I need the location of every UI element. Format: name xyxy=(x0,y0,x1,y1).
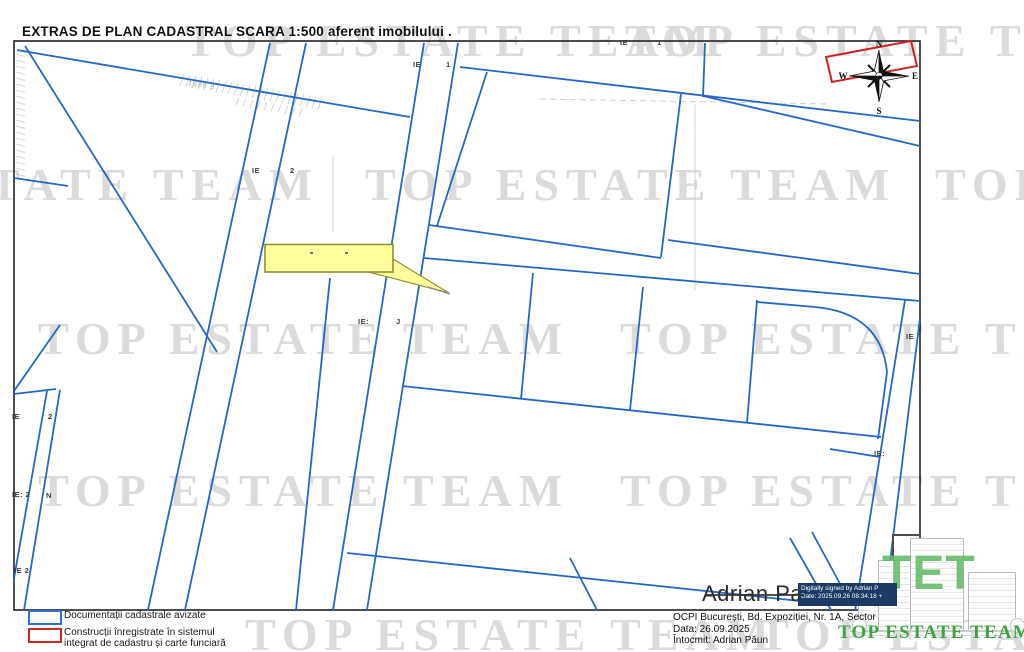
legend-swatch-constructii xyxy=(28,628,62,643)
page-title: EXTRAS DE PLAN CADASTRAL SCARA 1:500 afe… xyxy=(22,24,452,39)
signature-strike-line xyxy=(705,594,803,596)
legend-label-constructii-line1: Construcții înregistrate în sistemul xyxy=(64,627,215,638)
faint-guide-line xyxy=(540,99,830,104)
compass-east-label: E xyxy=(912,71,918,81)
compass-west-label: W xyxy=(839,71,848,81)
footer-author: Întocmit: Adrian Păun xyxy=(673,635,876,647)
map-frame xyxy=(14,41,920,610)
compass-rose-icon: N S W E xyxy=(839,39,919,116)
parcel-id-label: IE: 2 xyxy=(12,490,30,499)
parcel-id-label: IE xyxy=(413,60,421,69)
footer-date: Data: 26.09.2025 xyxy=(673,624,876,636)
parcel-id-label: 2 xyxy=(48,412,53,421)
footer-info: OCPI București, Bd. Expoziției, Nr. 1A, … xyxy=(673,612,876,647)
compass-north-label: N xyxy=(876,39,883,49)
pencil-sketch-hatching xyxy=(16,54,322,177)
parcel-id-label: IE xyxy=(12,412,20,421)
digital-signature-badge: Digitally signed by Adrian P Date: 2025.… xyxy=(798,583,897,606)
digital-signature-line2: Date: 2025.09.26 08:34:18 + xyxy=(801,593,897,601)
parcel-id-label: J xyxy=(396,317,401,326)
parcel-id-label: IE xyxy=(620,38,628,47)
parcel-id-label: IE xyxy=(252,166,260,175)
parcel-id-label: IE 2 xyxy=(14,566,29,575)
parcel-id-label: IE: xyxy=(874,449,885,458)
digital-signature-line1: Digitally signed by Adrian P xyxy=(801,585,897,593)
legend-label-constructii-line2: integrat de cadastru și carte funciară xyxy=(64,638,226,649)
cadastral-plan-page: TOP ESTATE TEAMTOP ESTATE TEAMTOP ESTATE… xyxy=(0,0,1024,652)
parcel-id-label: 2 xyxy=(290,166,295,175)
parcel-lines xyxy=(10,43,920,611)
legend-swatch-documentatii xyxy=(28,610,62,625)
crane-jib-icon xyxy=(892,534,920,536)
parcel-id-label: 1 xyxy=(657,38,662,47)
parcel-id-label: 1 xyxy=(446,60,451,69)
parcel-id-label: IE: xyxy=(358,317,369,326)
footer-address: OCPI București, Bd. Expoziției, Nr. 1A, … xyxy=(673,612,876,624)
legend-label-documentatii: Documentații cadastrale avizate xyxy=(64,610,206,621)
parcel-id-label: N xyxy=(46,491,52,500)
parcel-id-label: IE xyxy=(906,332,914,341)
compass-south-label: S xyxy=(876,106,881,116)
